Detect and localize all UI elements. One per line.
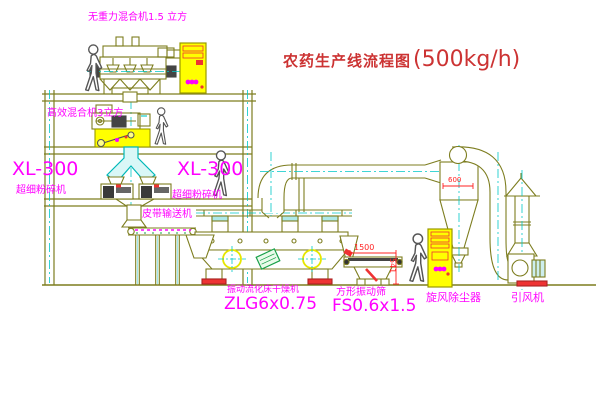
cabinet-indicator-icon xyxy=(434,267,447,272)
floor-slab-top xyxy=(42,94,256,101)
label-mill-right-model: XL-300 xyxy=(177,160,243,179)
mixer-agitators xyxy=(107,58,153,72)
label-mill-left-model: XL-300 xyxy=(12,160,78,179)
label-cyclone: 旋风除尘器 xyxy=(426,292,481,303)
control-cabinet-top xyxy=(180,43,206,93)
mill-left xyxy=(101,177,133,199)
belt-conveyor xyxy=(128,228,196,285)
person-ground-floor xyxy=(410,234,427,281)
fluid-bed-dryer xyxy=(195,210,352,284)
label-mill-left-name: 超细粉碎机 xyxy=(16,186,66,196)
dim-cyclone-width: 600 xyxy=(448,177,461,184)
label-mill-right-name: 超细粉碎机 xyxy=(172,191,222,201)
dim-screen-height: 541 xyxy=(388,258,396,273)
control-cabinet-right xyxy=(428,229,452,287)
dryer-risers xyxy=(212,216,338,232)
person-second-floor xyxy=(155,108,168,144)
cyclone-vortex-finder xyxy=(450,147,467,164)
diagram-title: 农药生产线流程图 (500kg/h) xyxy=(283,47,520,72)
mill-right xyxy=(139,177,171,199)
person-top-floor xyxy=(86,45,102,91)
title-text: 农药生产线流程图 xyxy=(283,50,411,71)
label-high-mixer: 高效混合机3立方 xyxy=(47,109,123,119)
flow-diagram-canvas: 农药生产线流程图 (500kg/h) 无重力混合机1.5 立方 高效混合机3立方… xyxy=(0,0,600,403)
conveyor-legs xyxy=(136,235,180,285)
label-screen-model: FS0.6x1.5 xyxy=(332,298,416,315)
label-conveyor: 皮带输送机 xyxy=(142,210,192,220)
label-dryer-model: ZLG6x0.75 xyxy=(224,296,317,313)
dim-screen-length: 1500 xyxy=(354,244,374,252)
label-fan: 引风机 xyxy=(511,292,544,303)
label-gravity-mixer: 无重力混合机1.5 立方 xyxy=(88,13,187,23)
exhaust-duct xyxy=(258,152,448,218)
title-capacity: (500kg/h) xyxy=(413,47,520,72)
gravity-free-mixer xyxy=(90,37,183,102)
induced-draft-fan xyxy=(508,254,547,286)
dryer-supports xyxy=(202,269,332,284)
cabinet-indicator-icon xyxy=(186,80,199,85)
